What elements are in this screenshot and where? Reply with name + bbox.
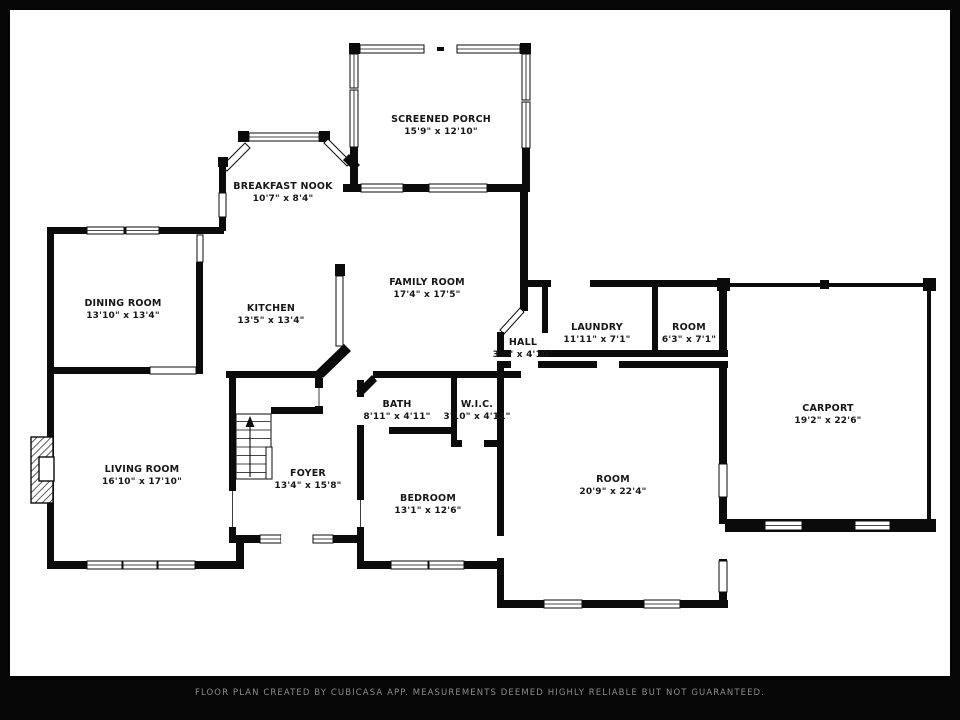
room-name: DINING ROOM [84, 298, 161, 309]
floor-plan-svg: SCREENED PORCH 15'9" x 12'10" BREAKFAST … [0, 0, 960, 720]
room-dims: 15'9" x 12'10" [404, 127, 478, 137]
room-dims: 13'4" x 15'8" [274, 481, 341, 491]
room-name: ROOM [596, 474, 630, 485]
room-name: ROOM [672, 322, 706, 333]
room-name: FAMILY ROOM [389, 277, 465, 288]
room-dims: 17'4" x 17'5" [393, 290, 460, 300]
room-dims: 19'2" x 22'6" [794, 416, 861, 426]
room-dims: 8'11" x 4'11" [363, 412, 430, 422]
plan-canvas [10, 10, 950, 676]
room-dims: 13'5" x 13'4" [237, 316, 304, 326]
footer-disclaimer: FLOOR PLAN CREATED BY CUBICASA APP. MEAS… [195, 688, 765, 698]
room-dims: 3'8" x 4'10" [493, 350, 554, 360]
room-name: LIVING ROOM [105, 464, 180, 475]
room-dims: 6'3" x 7'1" [662, 335, 716, 345]
room-dims: 13'1" x 12'6" [394, 506, 461, 516]
fireplace-icon [31, 437, 54, 503]
room-name: HALL [509, 337, 537, 348]
room-dims: 20'9" x 22'4" [579, 487, 646, 497]
room-dims: 16'10" x 17'10" [102, 477, 182, 487]
room-name: BATH [382, 399, 411, 410]
room-name: FOYER [290, 468, 326, 479]
room-dims: 10'7" x 8'4" [253, 194, 314, 204]
room-name: CARPORT [802, 403, 854, 414]
room-name: KITCHEN [247, 303, 295, 314]
room-name: LAUNDRY [571, 322, 623, 333]
room-name: SCREENED PORCH [391, 114, 491, 125]
room-dims: 13'10" x 13'4" [86, 311, 160, 321]
room-dims: 3'10" x 4'11" [443, 412, 510, 422]
room-name: BREAKFAST NOOK [233, 181, 333, 192]
room-name: BEDROOM [400, 493, 456, 504]
room-dims: 11'11" x 7'1" [563, 335, 630, 345]
floor-plan-page: SCREENED PORCH 15'9" x 12'10" BREAKFAST … [0, 0, 960, 720]
room-name: W.I.C. [461, 399, 493, 410]
